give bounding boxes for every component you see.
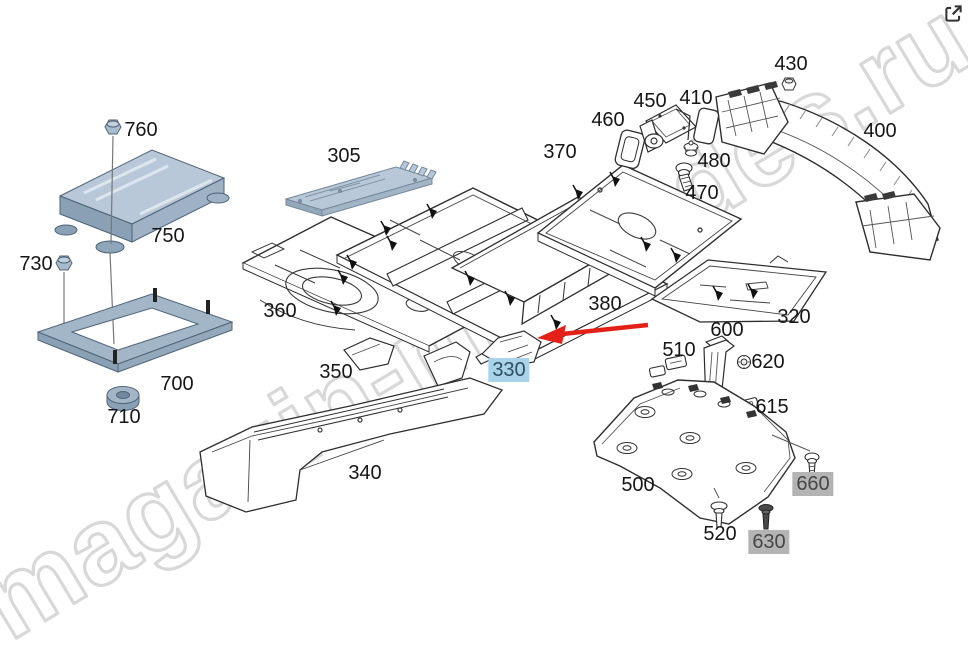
part-label-400[interactable]: 400 [863,120,896,142]
open-external-icon[interactable] [944,4,963,23]
part-label-450[interactable]: 450 [633,90,666,112]
part-label-430[interactable]: 430 [774,53,807,75]
labels-layer: 7607507307007103053603503403303703803204… [0,0,968,647]
part-label-320[interactable]: 320 [777,306,810,328]
part-label-460[interactable]: 460 [591,109,624,131]
part-label-410[interactable]: 410 [679,87,712,109]
part-label-510[interactable]: 510 [662,339,695,361]
part-label-710[interactable]: 710 [107,406,140,428]
part-label-380[interactable]: 380 [588,293,621,315]
part-label-620[interactable]: 620 [751,351,784,373]
part-label-500[interactable]: 500 [621,474,654,496]
part-label-520[interactable]: 520 [703,523,736,545]
part-label-600[interactable]: 600 [710,319,743,341]
part-label-700[interactable]: 700 [160,373,193,395]
part-label-630[interactable]: 630 [748,530,789,554]
part-label-480[interactable]: 480 [697,150,730,172]
part-label-340[interactable]: 340 [348,462,381,484]
part-label-760[interactable]: 760 [124,119,157,141]
part-label-750[interactable]: 750 [151,225,184,247]
part-label-730[interactable]: 730 [19,253,52,275]
part-label-350[interactable]: 350 [319,361,352,383]
part-label-470[interactable]: 470 [685,182,718,204]
part-label-330[interactable]: 330 [488,358,529,382]
part-label-660[interactable]: 660 [792,472,833,496]
part-label-615[interactable]: 615 [755,396,788,418]
parts-diagram-page: magazin-mercedes.ru [0,0,968,647]
part-label-360[interactable]: 360 [263,300,296,322]
part-label-370[interactable]: 370 [543,141,576,163]
part-label-305[interactable]: 305 [327,145,360,167]
